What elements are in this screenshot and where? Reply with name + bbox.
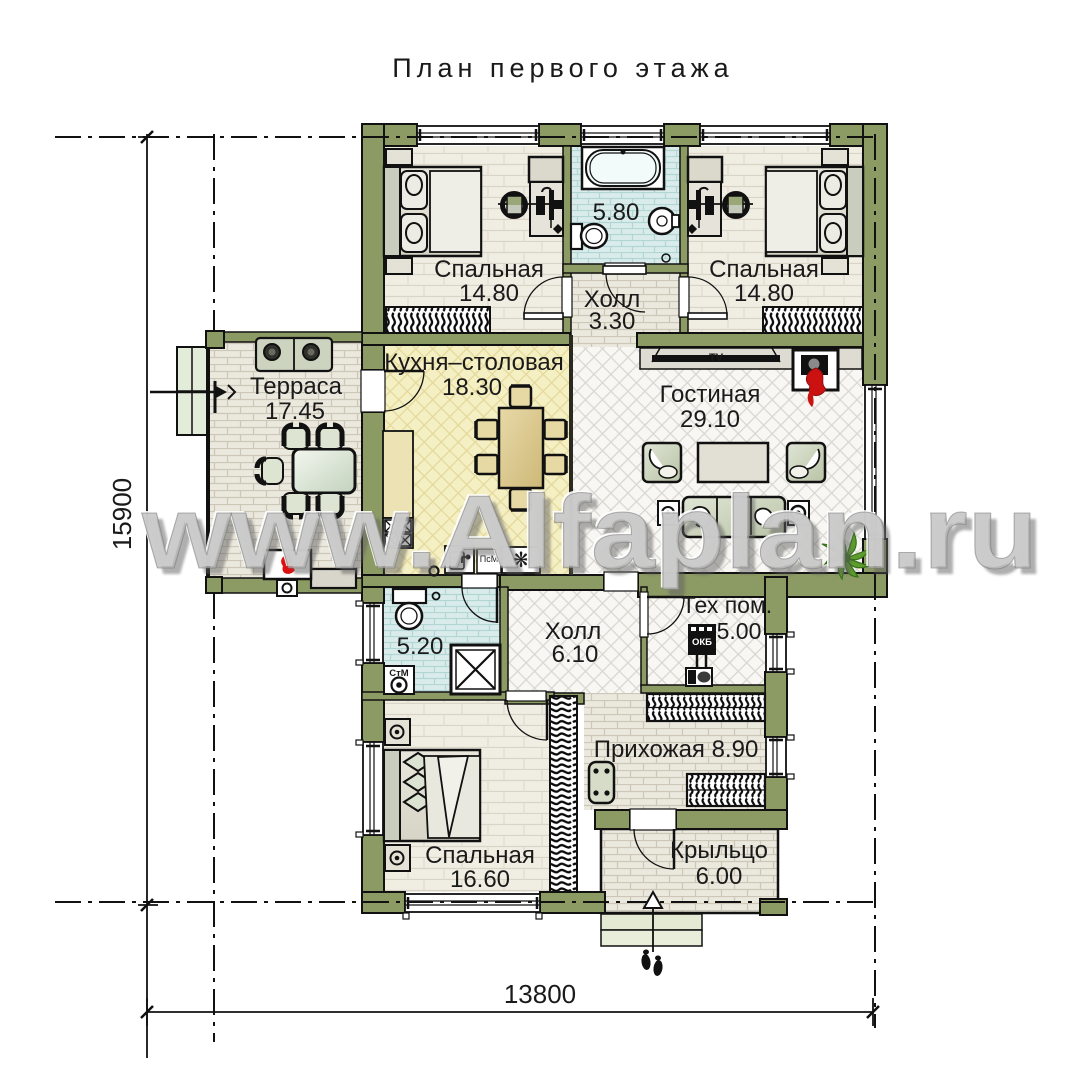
svg-text:16.60: 16.60	[450, 866, 510, 893]
svg-text:ОКБ: ОКБ	[692, 637, 712, 648]
svg-text:14.80: 14.80	[734, 280, 794, 307]
svg-text:5.00: 5.00	[717, 618, 762, 644]
svg-text:Крыльцо: Крыльцо	[670, 837, 768, 864]
svg-text:3.30: 3.30	[589, 308, 636, 335]
svg-text:Кухня–столовая: Кухня–столовая	[384, 349, 564, 376]
svg-text:14.80: 14.80	[459, 280, 519, 307]
svg-text:6.00: 6.00	[696, 863, 743, 890]
svg-text:TV: TV	[709, 352, 724, 364]
svg-text:17.45: 17.45	[265, 398, 325, 425]
svg-text:5.80: 5.80	[593, 199, 640, 226]
svg-text:29.10: 29.10	[680, 406, 740, 433]
svg-text:Спальная: Спальная	[709, 256, 819, 283]
svg-text:Гостиная: Гостиная	[660, 381, 761, 408]
svg-text:Терраса: Терраса	[250, 373, 343, 400]
svg-text:13800: 13800	[504, 979, 576, 1009]
svg-text:18.30: 18.30	[442, 374, 502, 401]
svg-text:5.20: 5.20	[397, 633, 444, 660]
svg-text:15900: 15900	[107, 478, 137, 550]
svg-text:Прихожая 8.90: Прихожая 8.90	[594, 736, 759, 763]
svg-text:Спальная: Спальная	[425, 842, 535, 869]
svg-text:6.10: 6.10	[552, 641, 599, 668]
svg-text:План первого этажа: План первого этажа	[392, 53, 733, 83]
svg-text:www.Alfaplan.ru: www.Alfaplan.ru	[141, 475, 1038, 591]
svg-text:Спальная: Спальная	[434, 256, 544, 283]
